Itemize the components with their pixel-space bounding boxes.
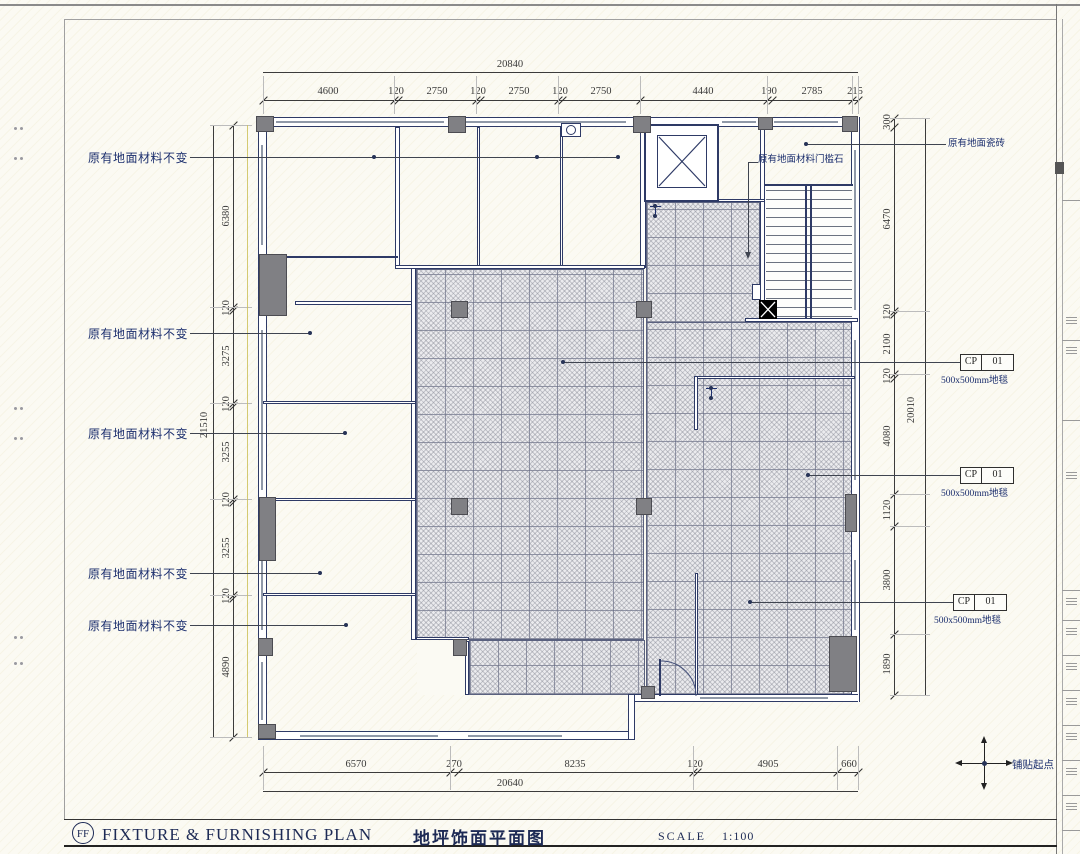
margin-mark: [20, 127, 23, 130]
stair-tread: [766, 298, 852, 299]
leader-dot: [308, 331, 312, 335]
dim-label: 270: [432, 759, 476, 771]
interior-wall: [477, 127, 480, 267]
stair-stringer: [810, 185, 812, 318]
dim-label: 4080: [882, 413, 894, 459]
dim-label: 2750: [497, 86, 541, 98]
dimension-extension-line: [558, 76, 559, 114]
margin-mark: [20, 407, 23, 410]
interior-wall: [263, 593, 416, 596]
compass-center-dot: [982, 761, 987, 766]
stair-tread: [766, 289, 852, 290]
titleblock-divider: [1062, 760, 1080, 761]
interior-wall: [695, 376, 855, 379]
threshold-label: 原有地面材料门槛石: [758, 151, 844, 165]
dim-label: 4600: [306, 86, 350, 98]
carpet-hatch-area: [469, 640, 645, 695]
dim-label: 120: [538, 86, 582, 98]
carpet-desc-label: 500x500mm地毯: [941, 485, 1008, 499]
leader-dot: [616, 155, 620, 159]
label-leader-line: [563, 362, 960, 363]
column: [451, 498, 468, 515]
window-glass: [854, 150, 856, 310]
dimension-extension-line: [210, 403, 252, 404]
column: [451, 301, 468, 318]
dimension-extension-line: [693, 746, 694, 790]
stair-tread: [766, 190, 852, 191]
window-glass: [468, 735, 562, 737]
titleblock-text-fragment: [1066, 801, 1077, 810]
stair-tread: [766, 199, 852, 200]
elevator-car: [657, 135, 707, 188]
label-leader-line: [750, 602, 953, 603]
dimension-extension-line-yellow: [247, 125, 248, 737]
column: [256, 116, 274, 132]
floor-unchanged-label: 原有地面材料不变: [88, 325, 188, 342]
dimension-extension-line: [210, 595, 252, 596]
window-glass: [276, 121, 444, 123]
dim-label: 3255: [221, 525, 233, 571]
carpet-tag-box: CP01: [953, 594, 1007, 611]
title-bar-top-line: [64, 819, 1057, 820]
titleblock-text-fragment: [1066, 315, 1077, 324]
margin-mark: [20, 157, 23, 160]
dim-label: 4440: [681, 86, 725, 98]
dimension-overall-line: [263, 72, 858, 73]
floor-unchanged-label: 原有地面材料不变: [88, 565, 188, 582]
dim-label: 120: [221, 381, 233, 427]
titleblock-divider: [1062, 655, 1080, 656]
dimension-extension-line: [210, 125, 252, 126]
interior-wall: [263, 498, 416, 501]
leader-dot: [804, 142, 808, 146]
margin-mark: [14, 662, 17, 665]
dimension-extension-line: [767, 76, 768, 114]
leader-dot: [318, 571, 322, 575]
dim-overall-label: 20010: [906, 387, 918, 433]
title-bar-bottom-line: [64, 845, 1057, 847]
carpet-tag-code: CP: [961, 468, 982, 483]
dimension-extension-line: [858, 76, 859, 114]
margin-mark: [20, 636, 23, 639]
dimension-extension-line: [210, 499, 252, 500]
label-leader-line: [190, 433, 345, 434]
floor-unchanged-label: 原有地面材料不变: [88, 149, 188, 166]
wall-fixture-circle: [566, 125, 576, 135]
dimension-extension-line: [263, 746, 264, 790]
dim-label: 120: [882, 353, 894, 399]
column: [636, 498, 652, 515]
column: [758, 117, 773, 130]
window-glass: [722, 121, 756, 123]
stair-door: [752, 284, 761, 300]
column: [259, 497, 276, 561]
dim-label: 120: [221, 285, 233, 331]
column: [842, 116, 858, 132]
compass-arrow-up: [981, 736, 987, 743]
column: [453, 639, 467, 656]
existing-tile-label: 原有地面瓷砖: [948, 135, 1005, 149]
dim-label: 6570: [334, 759, 378, 771]
plan-drawing-layer: 4600120275012027501202750444019027852152…: [0, 0, 1080, 854]
column: [258, 724, 276, 739]
dim-label: 120: [374, 86, 418, 98]
stair-tread: [766, 253, 852, 254]
dimension-overall-line: [925, 118, 926, 695]
window-glass: [261, 662, 263, 720]
stair-stringer: [805, 185, 807, 318]
dim-label: 120: [456, 86, 500, 98]
dimension-extension-line: [890, 494, 930, 495]
leader-dot: [806, 473, 810, 477]
dim-label: 3800: [882, 557, 894, 603]
dimension-extension-line: [858, 746, 859, 790]
titleblock-divider: [1062, 690, 1080, 691]
leader-dot: [535, 155, 539, 159]
compass-arrow-down: [981, 783, 987, 790]
dim-label: 2750: [579, 86, 623, 98]
titleblock-text-fragment: [1066, 626, 1077, 635]
dim-label: 8235: [553, 759, 597, 771]
window-glass: [700, 697, 828, 699]
dimension-extension-line: [394, 76, 395, 114]
column: [641, 686, 655, 699]
carpet-tag-number: 01: [982, 468, 1013, 483]
titleblock-divider: [1062, 795, 1080, 796]
dim-label: 1890: [882, 641, 894, 687]
column: [258, 638, 273, 656]
stair-tread: [766, 262, 852, 263]
window-glass: [300, 735, 438, 737]
dim-label: 6470: [882, 196, 894, 242]
plan-title-en: FIXTURE & FURNISHING PLAN: [102, 825, 372, 845]
dimension-extension-line: [450, 746, 451, 790]
leader-arrowhead: [745, 252, 751, 259]
carpet-hatch-area: [416, 269, 644, 640]
label-leader-line: [190, 333, 310, 334]
paving-start-marker: [653, 214, 657, 218]
titleblock-divider: [1062, 830, 1080, 831]
stair-tread: [766, 208, 852, 209]
scale-label: SCALE: [658, 829, 706, 844]
dim-label: 120: [673, 759, 717, 771]
dim-label: 3255: [221, 429, 233, 475]
dim-label: 3275: [221, 333, 233, 379]
compass-arrow-left: [955, 760, 962, 766]
floor-plan-sheet: 4600120275012027501202750444019027852152…: [0, 0, 1080, 854]
dim-label: 2785: [790, 86, 834, 98]
carpet-hatch-area: [646, 202, 760, 323]
dim-label: 120: [221, 573, 233, 619]
window-glass: [854, 560, 856, 630]
titleblock-divider: [1062, 340, 1080, 341]
interior-wall: [295, 301, 416, 305]
dimension-chain-line: [894, 118, 895, 695]
titleblock-divider: [1062, 725, 1080, 726]
dim-label: 215: [833, 86, 877, 98]
window-glass: [261, 330, 263, 490]
dimension-chain-line: [263, 772, 858, 773]
stair-base-marker: [759, 300, 777, 319]
plan-title-cn: 地坪饰面平面图: [413, 824, 546, 849]
interior-wall: [395, 265, 645, 269]
dimension-extension-line: [837, 746, 838, 790]
carpet-desc-label: 500x500mm地毯: [934, 612, 1001, 626]
label-leader-line: [190, 625, 346, 626]
column: [259, 254, 287, 316]
dimension-extension-line: [476, 76, 477, 114]
dim-overall-label: 21510: [199, 402, 211, 448]
floor-unchanged-label: 原有地面材料不变: [88, 617, 188, 634]
dimension-extension-line: [890, 118, 930, 119]
outer-wall-step: [628, 694, 635, 740]
stair-tread: [766, 244, 852, 245]
column: [448, 116, 466, 133]
stair-tread: [766, 226, 852, 227]
window-glass: [774, 121, 838, 123]
stair-tread: [766, 217, 852, 218]
dimension-extension-line: [852, 76, 853, 114]
dim-label: 120: [221, 477, 233, 523]
margin-mark: [14, 127, 17, 130]
titleblock-text-fragment: [1066, 766, 1077, 775]
dimension-extension-line: [210, 307, 252, 308]
leader-dot: [561, 360, 565, 364]
label-leader-line: [190, 573, 320, 574]
label-leader-line: [748, 162, 758, 163]
margin-mark: [14, 437, 17, 440]
margin-mark: [14, 157, 17, 160]
dimension-extension-line: [263, 76, 264, 114]
interior-wall: [395, 127, 400, 268]
window-glass: [261, 145, 263, 245]
stair-tread: [766, 316, 852, 317]
paving-start-marker: [709, 396, 713, 400]
interior-wall: [560, 127, 563, 267]
column: [829, 636, 857, 692]
stair-tread: [766, 271, 852, 272]
interior-wall: [659, 659, 661, 696]
titleblock-text-fragment: [1066, 596, 1077, 605]
dimension-overall-line: [213, 125, 214, 737]
dimension-extension-line: [640, 76, 641, 114]
dimension-extension-line: [890, 695, 930, 696]
margin-mark: [20, 437, 23, 440]
column: [636, 301, 652, 318]
titleblock-fragment: [1055, 162, 1064, 174]
margin-mark: [14, 636, 17, 639]
dimension-overall-line: [263, 791, 858, 792]
dim-label: 4905: [746, 759, 790, 771]
titleblock-text-fragment: [1066, 696, 1077, 705]
paving-start-marker: [653, 204, 657, 208]
label-leader-line: [806, 144, 946, 145]
carpet-tag-code: CP: [954, 595, 975, 610]
leader-dot: [343, 431, 347, 435]
dim-label: 6380: [221, 193, 233, 239]
scale-value: 1:100: [722, 829, 754, 844]
stair-tread: [766, 235, 852, 236]
label-leader-line: [748, 162, 749, 254]
floor-unchanged-label: 原有地面材料不变: [88, 425, 188, 442]
window-glass: [466, 121, 626, 123]
dimension-chain-line: [233, 125, 234, 737]
dim-overall-label: 20840: [488, 59, 532, 71]
dim-label: 300: [882, 99, 894, 145]
leader-dot: [372, 155, 376, 159]
dimension-extension-line: [890, 526, 930, 527]
margin-mark: [14, 407, 17, 410]
carpet-tag-number: 01: [982, 355, 1013, 370]
titleblock-text-fragment: [1066, 731, 1077, 740]
dimension-extension-line: [210, 737, 252, 738]
label-leader-line: [808, 475, 960, 476]
dimension-extension-line: [890, 634, 930, 635]
interior-wall: [695, 573, 698, 695]
titleblock-divider: [1062, 200, 1080, 201]
stair-tread: [766, 307, 852, 308]
label-leader-line: [190, 157, 618, 158]
leader-dot: [344, 623, 348, 627]
titleblock-divider: [1062, 590, 1080, 591]
dim-overall-label: 20640: [488, 778, 532, 790]
titleblock-divider: [1062, 420, 1080, 421]
titleblock-text-fragment: [1066, 345, 1077, 354]
carpet-desc-label: 500x500mm地毯: [941, 372, 1008, 386]
stair-top-line: [765, 184, 853, 186]
window-glass: [854, 340, 856, 480]
stair-tread: [766, 280, 852, 281]
interior-wall: [411, 268, 416, 640]
margin-mark: [20, 662, 23, 665]
carpet-tag-box: CP01: [960, 354, 1014, 371]
dimension-extension-line: [890, 374, 930, 375]
carpet-tag-code: CP: [961, 355, 982, 370]
titleblock-text-fragment: [1066, 470, 1077, 479]
paving-start-marker: [709, 386, 713, 390]
plan-tag-circle: FF: [72, 822, 94, 844]
dim-label: 2750: [415, 86, 459, 98]
dimension-extension-line: [890, 311, 930, 312]
dim-label: 190: [747, 86, 791, 98]
interior-wall: [694, 376, 698, 430]
titleblock-divider: [1062, 620, 1080, 621]
carpet-tag-number: 01: [975, 595, 1006, 610]
dim-label: 660: [827, 759, 871, 771]
leader-dot: [748, 600, 752, 604]
dim-label: 4890: [221, 644, 233, 690]
carpet-tag-box: CP01: [960, 467, 1014, 484]
interior-wall: [263, 401, 416, 404]
titleblock-text-fragment: [1066, 661, 1077, 670]
column: [845, 494, 857, 532]
column: [633, 116, 651, 133]
paving-start-label: 铺贴起点: [1012, 757, 1054, 772]
